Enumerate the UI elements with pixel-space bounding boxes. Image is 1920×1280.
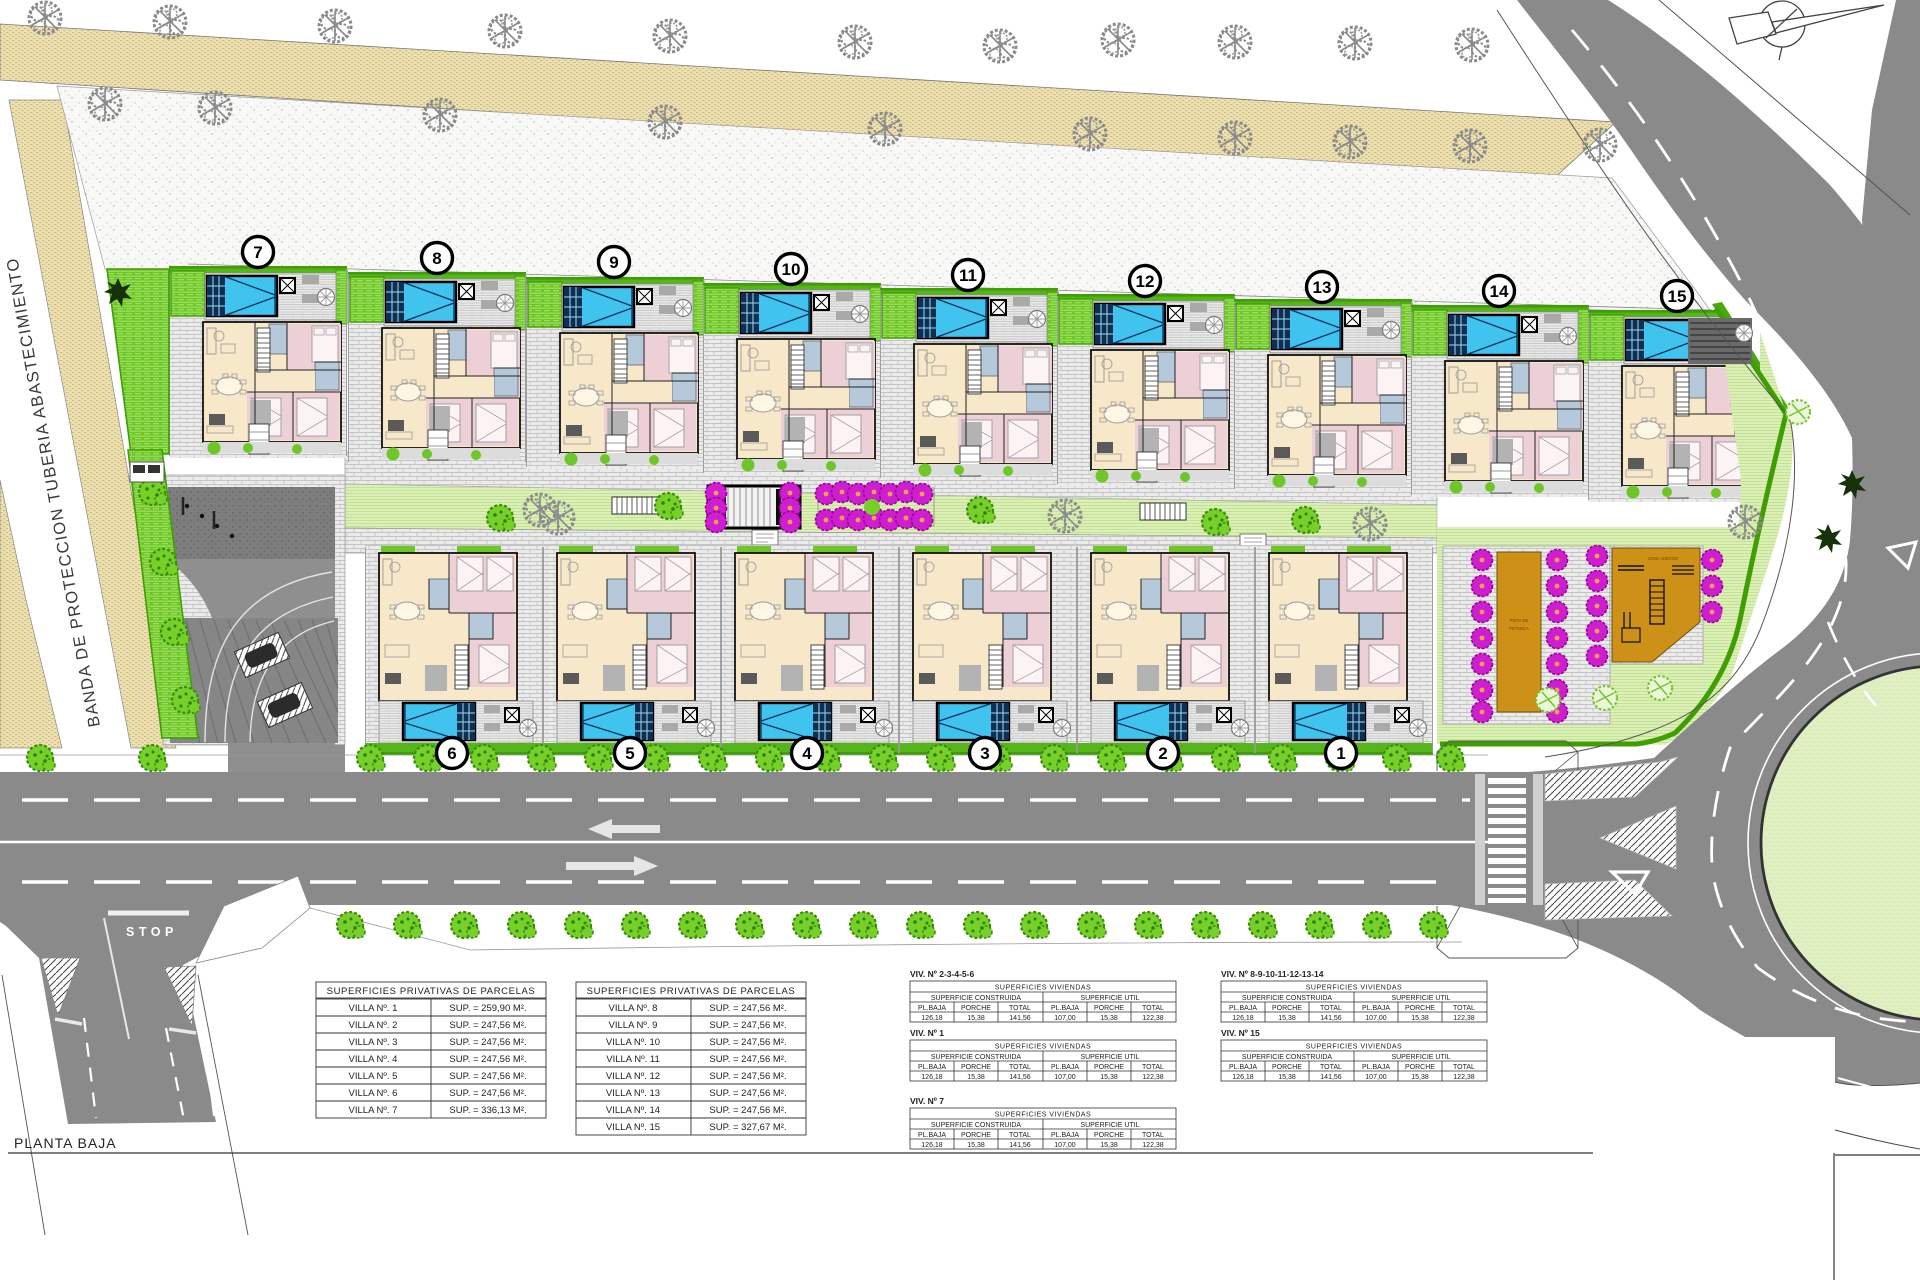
svg-text:15,38: 15,38: [967, 1074, 985, 1081]
svg-text:VILLA Nº. 7: VILLA Nº. 7: [349, 1105, 398, 1116]
svg-text:SUPERFICIES VIVIENDAS: SUPERFICIES VIVIENDAS: [995, 1112, 1091, 1119]
svg-text:107,00: 107,00: [1054, 1142, 1076, 1149]
svg-text:PETANCA: PETANCA: [1509, 626, 1529, 631]
svg-text:PORCHE: PORCHE: [1094, 1132, 1124, 1139]
svg-text:SUPERFICIE CONSTRUIDA: SUPERFICIE CONSTRUIDA: [1242, 995, 1333, 1002]
svg-text:15,38: 15,38: [1411, 1074, 1429, 1081]
svg-text:107,00: 107,00: [1365, 1074, 1387, 1081]
svg-text:SUP. = 247,56 M².: SUP. = 247,56 M².: [709, 1037, 786, 1048]
svg-text:SUPERFICIE CONSTRUIDA: SUPERFICIE CONSTRUIDA: [931, 995, 1022, 1002]
svg-text:15,38: 15,38: [1100, 1074, 1118, 1081]
svg-text:10: 10: [782, 260, 801, 279]
svg-text:SUP. = 336,13 M².: SUP. = 336,13 M².: [449, 1105, 526, 1116]
svg-text:PL.BAJA: PL.BAJA: [1362, 1064, 1390, 1071]
svg-text:PL.BAJA: PL.BAJA: [1051, 1132, 1079, 1139]
svg-text:PL.BAJA: PL.BAJA: [1229, 1005, 1257, 1012]
svg-text:PORCHE: PORCHE: [961, 1064, 991, 1071]
svg-text:VIV. Nº 15: VIV. Nº 15: [1221, 1028, 1260, 1038]
svg-text:TOTAL: TOTAL: [1453, 1064, 1475, 1071]
svg-text:TOTAL: TOTAL: [1320, 1064, 1342, 1071]
svg-text:VILLA Nº. 1: VILLA Nº. 1: [349, 1003, 398, 1014]
svg-text:TOTAL: TOTAL: [1009, 1005, 1031, 1012]
svg-text:SUP. = 247,56 M².: SUP. = 247,56 M².: [709, 1105, 786, 1116]
svg-text:SUPERFICIES VIVIENDAS: SUPERFICIES VIVIENDAS: [1306, 985, 1402, 992]
svg-text:SUPERFICIE UTIL: SUPERFICIE UTIL: [1080, 1122, 1139, 1129]
svg-text:1: 1: [1336, 744, 1345, 763]
svg-text:VIV. Nº 1: VIV. Nº 1: [910, 1028, 944, 1038]
svg-text:SUP. = 247,56 M².: SUP. = 247,56 M².: [449, 1054, 526, 1065]
svg-text:PORCHE: PORCHE: [961, 1132, 991, 1139]
svg-text:PL.BAJA: PL.BAJA: [918, 1132, 946, 1139]
svg-text:SUP. = 247,56 M².: SUP. = 247,56 M².: [449, 1088, 526, 1099]
svg-text:SUPERFICIE UTIL: SUPERFICIE UTIL: [1080, 995, 1139, 1002]
svg-text:15,38: 15,38: [967, 1142, 985, 1149]
svg-text:15: 15: [1668, 287, 1687, 306]
svg-text:141,56: 141,56: [1009, 1142, 1031, 1149]
svg-text:126,18: 126,18: [1232, 1015, 1254, 1022]
svg-text:15,38: 15,38: [967, 1015, 985, 1022]
svg-text:PL.BAJA: PL.BAJA: [1229, 1064, 1257, 1071]
svg-text:15,38: 15,38: [1100, 1015, 1118, 1022]
svg-text:TOTAL: TOTAL: [1009, 1064, 1031, 1071]
svg-text:PORCHE: PORCHE: [1272, 1064, 1302, 1071]
svg-text:PORCHE: PORCHE: [961, 1005, 991, 1012]
svg-text:PISTA DE: PISTA DE: [1510, 618, 1529, 623]
svg-text:VIV. Nº 7: VIV. Nº 7: [910, 1096, 944, 1106]
svg-text:SUP. = 247,56 M².: SUP. = 247,56 M².: [449, 1071, 526, 1082]
svg-text:141,56: 141,56: [1009, 1015, 1031, 1022]
svg-text:6: 6: [447, 744, 456, 763]
svg-text:3: 3: [980, 744, 989, 763]
svg-text:VIV. Nº 2-3-4-5-6: VIV. Nº 2-3-4-5-6: [910, 969, 974, 979]
svg-text:126,18: 126,18: [1232, 1074, 1254, 1081]
svg-text:SUP. = 259,90 M².: SUP. = 259,90 M².: [449, 1003, 526, 1014]
svg-text:122,38: 122,38: [1453, 1015, 1475, 1022]
svg-text:15,38: 15,38: [1411, 1015, 1429, 1022]
svg-text:107,00: 107,00: [1365, 1015, 1387, 1022]
svg-text:SUPERFICIES VIVIENDAS: SUPERFICIES VIVIENDAS: [995, 985, 1091, 992]
svg-text:SUP. = 247,56 M².: SUP. = 247,56 M².: [709, 1054, 786, 1065]
svg-text:SUPERFICIES VIVIENDAS: SUPERFICIES VIVIENDAS: [1306, 1044, 1402, 1051]
svg-text:VILLA Nº. 9: VILLA Nº. 9: [609, 1020, 658, 1031]
svg-text:PL.BAJA: PL.BAJA: [1051, 1005, 1079, 1012]
svg-text:15,38: 15,38: [1278, 1074, 1296, 1081]
svg-text:SUPERFICIE UTIL: SUPERFICIE UTIL: [1391, 1054, 1450, 1061]
svg-text:PLANTA BAJA: PLANTA BAJA: [14, 1135, 117, 1151]
svg-text:PORCHE: PORCHE: [1272, 1005, 1302, 1012]
svg-text:TOTAL: TOTAL: [1142, 1005, 1164, 1012]
svg-text:PL.BAJA: PL.BAJA: [918, 1064, 946, 1071]
svg-text:9: 9: [609, 253, 618, 272]
svg-text:ZONA JUEGOS: ZONA JUEGOS: [1648, 556, 1678, 561]
svg-text:VILLA Nº. 4: VILLA Nº. 4: [349, 1054, 398, 1065]
svg-text:SUP. = 247,56 M².: SUP. = 247,56 M².: [709, 1003, 786, 1014]
svg-text:SUPERFICIE CONSTRUIDA: SUPERFICIE CONSTRUIDA: [931, 1054, 1022, 1061]
svg-text:SUP. = 247,56 M².: SUP. = 247,56 M².: [449, 1037, 526, 1048]
svg-text:141,56: 141,56: [1009, 1074, 1031, 1081]
svg-text:VILLA Nº. 14: VILLA Nº. 14: [606, 1105, 660, 1116]
svg-text:SUPERFICIE UTIL: SUPERFICIE UTIL: [1080, 1054, 1139, 1061]
svg-text:PORCHE: PORCHE: [1405, 1005, 1435, 1012]
svg-text:PL.BAJA: PL.BAJA: [1051, 1064, 1079, 1071]
svg-text:126,18: 126,18: [921, 1142, 943, 1149]
svg-text:5: 5: [625, 744, 634, 763]
svg-text:13: 13: [1313, 278, 1332, 297]
svg-text:122,38: 122,38: [1142, 1074, 1164, 1081]
svg-text:SUPERFICIE CONSTRUIDA: SUPERFICIE CONSTRUIDA: [931, 1122, 1022, 1129]
svg-text:122,38: 122,38: [1142, 1142, 1164, 1149]
svg-text:VILLA Nº. 5: VILLA Nº. 5: [349, 1071, 398, 1082]
svg-text:12: 12: [1136, 272, 1155, 291]
svg-text:STOP: STOP: [126, 925, 178, 939]
svg-text:8: 8: [432, 249, 441, 268]
svg-text:SUPERFICIE CONSTRUIDA: SUPERFICIE CONSTRUIDA: [1242, 1054, 1333, 1061]
svg-text:SUP. = 247,56 M².: SUP. = 247,56 M².: [709, 1071, 786, 1082]
svg-text:126,18: 126,18: [921, 1015, 943, 1022]
svg-text:VILLA Nº. 12: VILLA Nº. 12: [606, 1071, 660, 1082]
svg-text:14: 14: [1490, 282, 1509, 301]
svg-text:VILLA Nº. 2: VILLA Nº. 2: [349, 1020, 398, 1031]
svg-text:VILLA Nº. 8: VILLA Nº. 8: [609, 1003, 658, 1014]
svg-text:SUP. = 327,67 M².: SUP. = 327,67 M².: [709, 1122, 786, 1133]
svg-text:SUP. = 247,56 M².: SUP. = 247,56 M².: [709, 1020, 786, 1031]
svg-text:107,00: 107,00: [1054, 1015, 1076, 1022]
svg-text:126,18: 126,18: [921, 1074, 943, 1081]
svg-text:VILLA Nº. 11: VILLA Nº. 11: [606, 1054, 659, 1065]
svg-text:122,38: 122,38: [1142, 1015, 1164, 1022]
svg-text:TOTAL: TOTAL: [1009, 1132, 1031, 1139]
svg-text:VILLA Nº. 3: VILLA Nº. 3: [349, 1037, 398, 1048]
svg-text:PL.BAJA: PL.BAJA: [918, 1005, 946, 1012]
svg-text:VILLA Nº. 13: VILLA Nº. 13: [606, 1088, 660, 1099]
svg-text:VILLA Nº. 15: VILLA Nº. 15: [606, 1122, 660, 1133]
svg-text:SUPERFICIES VIVIENDAS: SUPERFICIES VIVIENDAS: [995, 1044, 1091, 1051]
svg-text:TOTAL: TOTAL: [1320, 1005, 1342, 1012]
svg-text:15,38: 15,38: [1100, 1142, 1118, 1149]
svg-text:PORCHE: PORCHE: [1405, 1064, 1435, 1071]
svg-text:SUPERFICIES PRIVATIVAS DE PARC: SUPERFICIES PRIVATIVAS DE PARCELAS: [327, 986, 536, 997]
svg-text:SUPERFICIES PRIVATIVAS DE PARC: SUPERFICIES PRIVATIVAS DE PARCELAS: [587, 986, 796, 997]
svg-text:TOTAL: TOTAL: [1142, 1064, 1164, 1071]
svg-text:PL.BAJA: PL.BAJA: [1362, 1005, 1390, 1012]
svg-text:PORCHE: PORCHE: [1094, 1064, 1124, 1071]
svg-text:TOTAL: TOTAL: [1142, 1132, 1164, 1139]
svg-text:SUP. = 247,56 M².: SUP. = 247,56 M².: [709, 1088, 786, 1099]
svg-text:SUP. = 247,56 M².: SUP. = 247,56 M².: [449, 1020, 526, 1031]
svg-text:107,00: 107,00: [1054, 1074, 1076, 1081]
svg-text:VIV. Nº 8-9-10-11-12-13-14: VIV. Nº 8-9-10-11-12-13-14: [1221, 969, 1324, 979]
svg-text:VILLA Nº. 6: VILLA Nº. 6: [349, 1088, 398, 1099]
svg-text:PORCHE: PORCHE: [1094, 1005, 1124, 1012]
svg-text:SUPERFICIE UTIL: SUPERFICIE UTIL: [1391, 995, 1450, 1002]
svg-text:4: 4: [802, 744, 812, 763]
svg-text:141,56: 141,56: [1320, 1015, 1342, 1022]
svg-text:2: 2: [1158, 744, 1167, 763]
svg-text:15,38: 15,38: [1278, 1015, 1296, 1022]
svg-text:11: 11: [959, 266, 977, 285]
svg-text:VILLA Nº. 10: VILLA Nº. 10: [606, 1037, 660, 1048]
svg-text:TOTAL: TOTAL: [1453, 1005, 1475, 1012]
svg-text:7: 7: [253, 243, 262, 262]
svg-text:141,56: 141,56: [1320, 1074, 1342, 1081]
svg-text:122,38: 122,38: [1453, 1074, 1475, 1081]
